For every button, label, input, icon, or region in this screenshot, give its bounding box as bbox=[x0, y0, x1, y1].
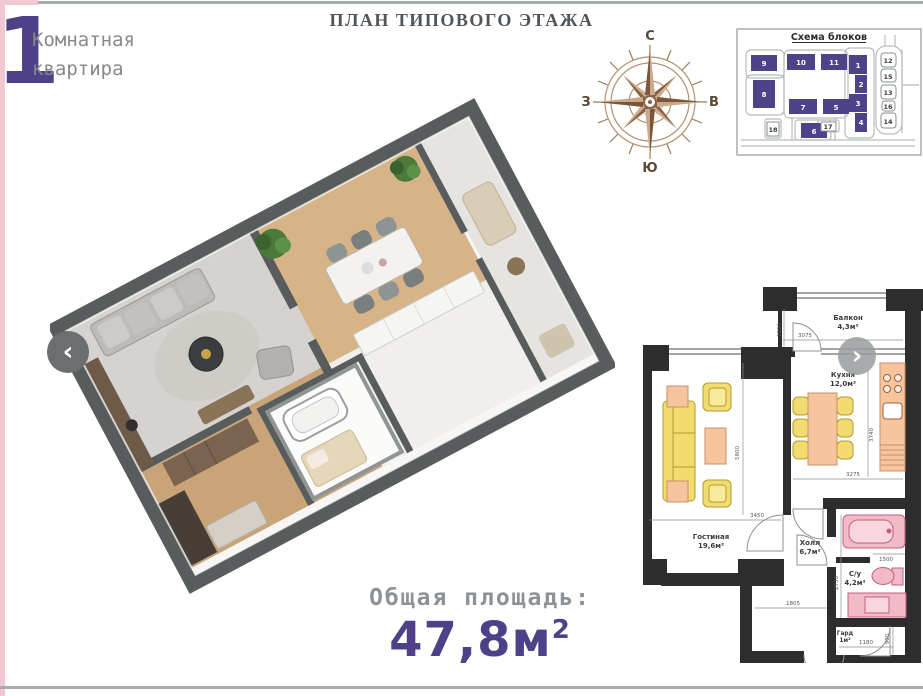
room-wardrobe-area: 1м² bbox=[839, 637, 851, 644]
total-area-value: 47,8м2 bbox=[340, 612, 620, 668]
room-bath-area: 4,2м² bbox=[844, 579, 865, 587]
bottom-divider-line bbox=[0, 686, 923, 689]
top-divider-line bbox=[38, 1, 923, 4]
dimension-label: 1250 bbox=[777, 323, 783, 337]
block-10: 10 bbox=[796, 59, 806, 67]
dimension-label: 1500 bbox=[879, 557, 893, 563]
block-13: 13 bbox=[883, 89, 892, 97]
block-8: 8 bbox=[762, 91, 767, 99]
room-wardrobe-name: Гард bbox=[837, 631, 854, 637]
block-1: 1 bbox=[856, 62, 861, 70]
room-bath-name: С/у bbox=[849, 570, 862, 578]
chevron-right-icon: › bbox=[852, 343, 863, 369]
block-scheme-map: Схема блоков 9 10 11 8 7 5 1 2 3 4 6 18 … bbox=[735, 25, 923, 158]
living-furniture-2d bbox=[663, 383, 731, 507]
block-6: 6 bbox=[812, 128, 817, 136]
total-area-label: Общая площадь: bbox=[340, 585, 620, 611]
floor-plan-3d-render bbox=[50, 78, 615, 628]
total-area-number: 47,8 bbox=[389, 612, 511, 668]
block-5: 5 bbox=[834, 104, 839, 112]
block-15: 15 bbox=[883, 73, 893, 81]
dimension-label: 1805 bbox=[786, 601, 800, 607]
chevron-left-icon: ‹ bbox=[63, 339, 74, 365]
dimension-label: 2730 bbox=[834, 576, 840, 590]
block-7: 7 bbox=[801, 104, 806, 112]
dimension-label: 900 bbox=[885, 633, 891, 644]
block-9: 9 bbox=[762, 60, 767, 68]
room-kitchen-area: 12,0м² bbox=[830, 380, 856, 388]
total-area-sup: 2 bbox=[552, 615, 571, 645]
block-16: 16 bbox=[883, 103, 893, 111]
block-14: 14 bbox=[883, 118, 893, 126]
total-area-unit: м bbox=[512, 612, 552, 668]
block-2: 2 bbox=[859, 81, 864, 89]
dimension-label: 5800 bbox=[735, 446, 741, 460]
room-living-name: Гостиная bbox=[693, 533, 729, 541]
bathroom-fixtures-2d bbox=[843, 515, 906, 617]
block-11: 11 bbox=[829, 59, 839, 67]
room-balcony-name: Балкон bbox=[833, 314, 863, 322]
compass-south-label: Ю bbox=[642, 161, 657, 174]
block-scheme-title: Схема блоков bbox=[791, 32, 867, 43]
block-17: 17 bbox=[823, 123, 832, 131]
compass-north-label: С bbox=[645, 29, 655, 44]
block-18: 18 bbox=[768, 126, 778, 134]
dimension-label: 3740 bbox=[869, 428, 875, 442]
block-12: 12 bbox=[883, 57, 892, 65]
block-3: 3 bbox=[856, 100, 861, 108]
next-slide-button[interactable]: › bbox=[838, 337, 876, 375]
dimension-label: 3275 bbox=[846, 472, 860, 478]
prev-slide-button[interactable]: ‹ bbox=[47, 331, 89, 373]
dimension-label: 3075 bbox=[798, 333, 812, 339]
apartment-type-label: Комнатная квартира bbox=[32, 26, 135, 85]
floor-plan-2d: 1250 3075 3740 3275 3450 5800 1805 1500 … bbox=[643, 283, 923, 663]
dimension-label: 1180 bbox=[859, 640, 873, 646]
room-living-area: 19,6м² bbox=[698, 542, 724, 550]
room-hall-name: Холл bbox=[800, 539, 820, 547]
block-4: 4 bbox=[859, 119, 864, 127]
room-hall-area: 6,7м² bbox=[799, 548, 820, 556]
dimension-label: 3450 bbox=[750, 513, 764, 519]
room-balcony-area: 4,3м² bbox=[837, 323, 858, 331]
compass-east-label: В bbox=[709, 95, 719, 110]
